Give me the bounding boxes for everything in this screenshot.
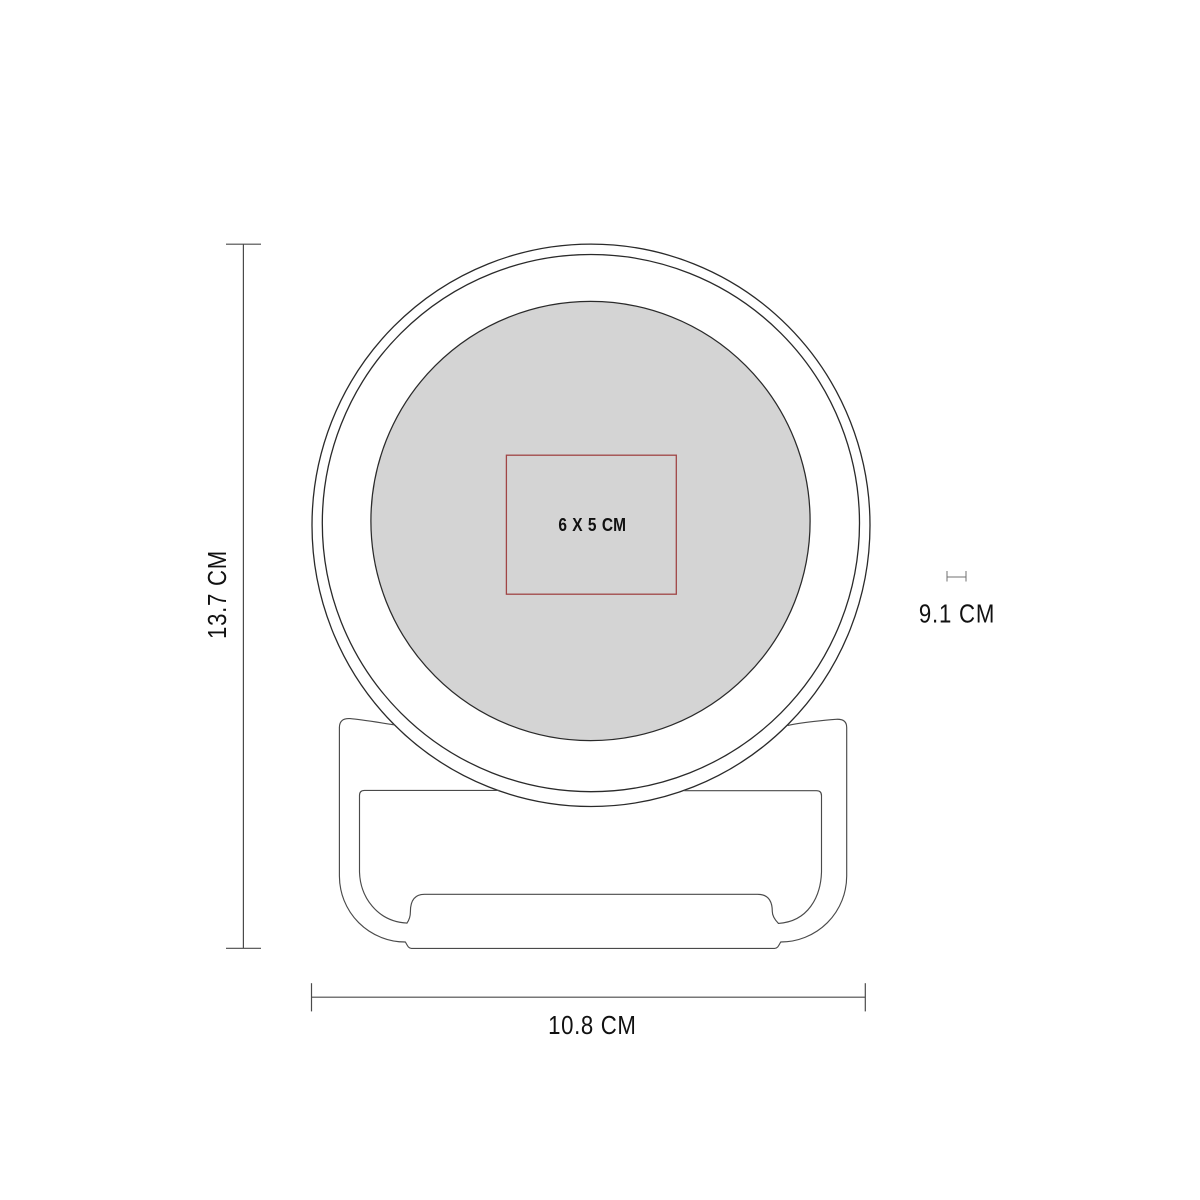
svg-text:13.7 CM: 13.7 CM xyxy=(204,550,233,639)
svg-text:6 X 5 CM: 6 X 5 CM xyxy=(558,515,626,535)
svg-text:10.8 CM: 10.8 CM xyxy=(548,1011,636,1040)
svg-text:9.1 CM: 9.1 CM xyxy=(919,600,995,629)
